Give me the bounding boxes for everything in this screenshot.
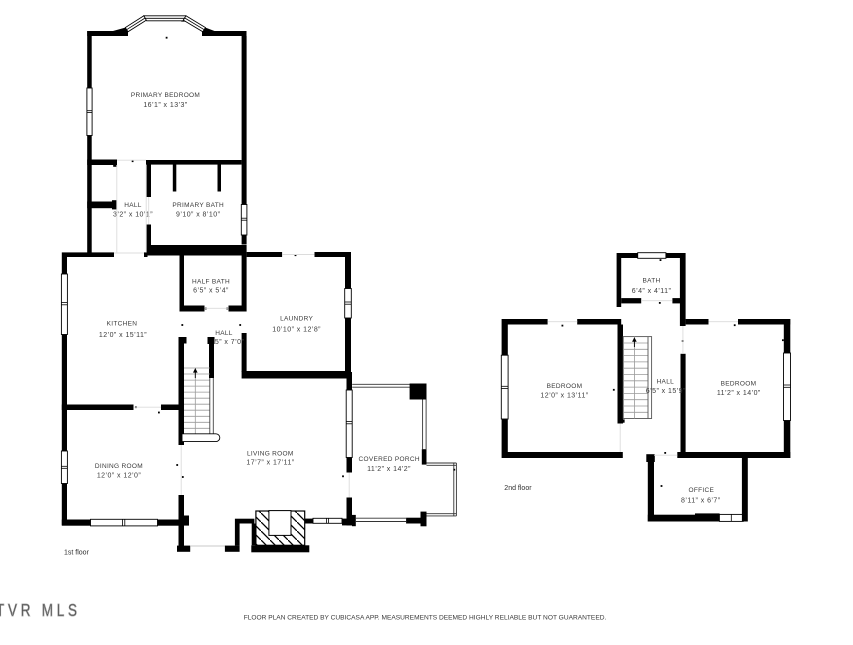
svg-text:HALL: HALL <box>124 202 142 209</box>
svg-text:LAUNDRY: LAUNDRY <box>280 316 313 323</box>
svg-text:11’2” x 14’2”: 11’2” x 14’2” <box>367 466 411 473</box>
svg-text:6’4” x 4’11”: 6’4” x 4’11” <box>632 288 672 295</box>
svg-text:FLOOR PLAN CREATED BY CUBICASA: FLOOR PLAN CREATED BY CUBICASA APP. MEAS… <box>244 615 607 622</box>
svg-text:17’7” x 17’11”: 17’7” x 17’11” <box>246 460 294 467</box>
svg-text:12’0” x 12’0”: 12’0” x 12’0” <box>97 473 142 480</box>
svg-text:PRIMARY BEDROOM: PRIMARY BEDROOM <box>131 92 200 99</box>
svg-text:BEDROOM: BEDROOM <box>721 380 757 387</box>
svg-text:11’2” x 14’0”: 11’2” x 14’0” <box>717 390 761 397</box>
svg-text:HALL: HALL <box>215 330 233 337</box>
svg-text:HALF BATH: HALF BATH <box>192 279 230 286</box>
svg-text:6’5” x 5’4”: 6’5” x 5’4” <box>193 287 229 294</box>
svg-text:TVR MLS: TVR MLS <box>0 601 81 620</box>
svg-text:9’10” x 8’10”: 9’10” x 8’10” <box>176 212 221 219</box>
svg-text:PRIMARY BATH: PRIMARY BATH <box>172 202 224 209</box>
svg-text:10’10” x 12’8”: 10’10” x 12’8” <box>272 327 321 334</box>
svg-text:OFFICE: OFFICE <box>688 487 714 494</box>
svg-text:12’0” x 15’11”: 12’0” x 15’11” <box>99 332 147 339</box>
svg-text:1st floor: 1st floor <box>64 549 90 556</box>
svg-text:BATH: BATH <box>642 278 660 285</box>
svg-text:5” x 7’0”: 5” x 7’0” <box>215 339 245 346</box>
svg-text:HALL: HALL <box>657 378 675 385</box>
svg-text:3’2” x 10’1”: 3’2” x 10’1” <box>113 212 153 219</box>
svg-text:12’0” x 13’11”: 12’0” x 13’11” <box>540 393 588 400</box>
svg-text:BEDROOM: BEDROOM <box>547 383 583 390</box>
svg-text:KITCHEN: KITCHEN <box>107 320 138 327</box>
svg-text:2nd floor: 2nd floor <box>504 485 532 492</box>
svg-text:DINING ROOM: DINING ROOM <box>95 463 143 470</box>
svg-text:6’5” x 15’9”: 6’5” x 15’9” <box>646 388 686 395</box>
svg-text:COVERED PORCH: COVERED PORCH <box>359 456 420 463</box>
svg-text:8’11” x 6’7”: 8’11” x 6’7” <box>681 498 721 505</box>
svg-text:16’1” x 13’3”: 16’1” x 13’3” <box>143 102 188 109</box>
svg-text:LIVING ROOM: LIVING ROOM <box>247 451 294 458</box>
